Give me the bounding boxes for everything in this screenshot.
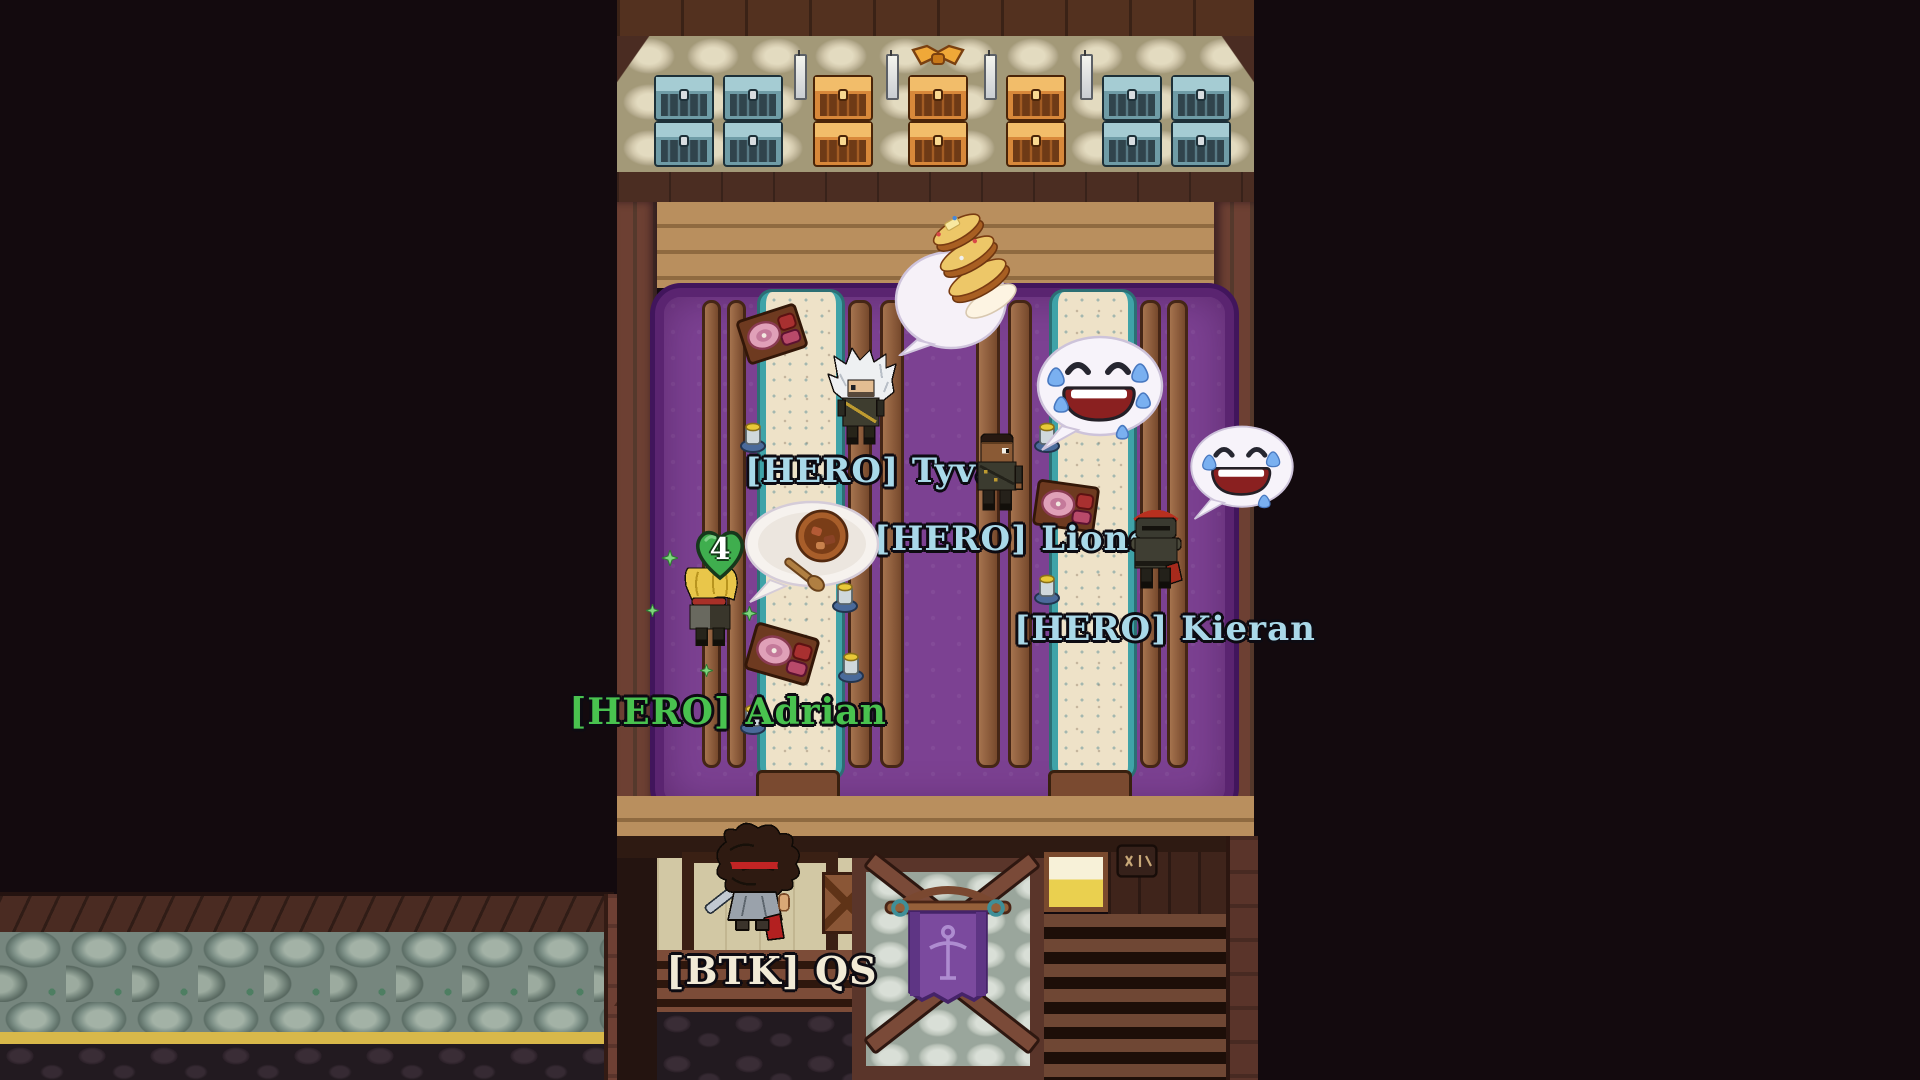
storage-chest-teal[interactable] bbox=[651, 70, 717, 172]
heal-sparkle-icon bbox=[700, 664, 713, 677]
heal-sparkle-icon bbox=[742, 606, 757, 621]
cobblestone-ground bbox=[0, 1044, 660, 1080]
door-post bbox=[682, 852, 694, 950]
laughing-crying-emote-bubble bbox=[1188, 420, 1296, 528]
storage-chest-orange[interactable] bbox=[810, 70, 876, 172]
mug-icon bbox=[838, 644, 864, 684]
mug-icon bbox=[1034, 566, 1060, 606]
cobblestone-ground bbox=[657, 1012, 857, 1080]
stone-wall bbox=[0, 932, 614, 1032]
player-label-adrian: [HERO] Adrian bbox=[538, 694, 918, 730]
hall-wall-left bbox=[617, 202, 657, 836]
heal-sparkle-icon bbox=[646, 604, 659, 617]
heal-sparkle-icon bbox=[662, 550, 678, 566]
player-sprite-lionel[interactable] bbox=[962, 430, 1034, 550]
player-sprite-kieran[interactable] bbox=[1118, 508, 1194, 630]
candle-icon bbox=[1080, 54, 1093, 100]
candle-icon bbox=[794, 54, 807, 100]
laughing-crying-emote-bubble bbox=[1034, 334, 1166, 456]
storage-chest-teal[interactable] bbox=[1099, 70, 1165, 172]
heal-heart-counter: 4 bbox=[692, 524, 748, 586]
wall-sign bbox=[1116, 844, 1158, 878]
ceiling-beam bbox=[617, 0, 1254, 40]
storage-chest-orange-ribbon[interactable] bbox=[905, 40, 971, 172]
candle-icon bbox=[984, 54, 997, 100]
stew-bowl-emote-bubble bbox=[738, 496, 890, 604]
building-right-post bbox=[1226, 836, 1258, 1080]
pancakes-emote-bubble bbox=[893, 204, 1025, 356]
lit-window bbox=[1044, 852, 1108, 912]
storage-chest-orange[interactable] bbox=[1003, 70, 1069, 172]
mug-icon bbox=[740, 414, 766, 454]
game-viewport[interactable]: [HERO] Tyva [HERO] Lionel [HERO] Kieran … bbox=[0, 0, 1920, 1080]
player-sprite-tyva[interactable] bbox=[826, 346, 900, 468]
player-sprite-qs[interactable] bbox=[702, 822, 810, 962]
candle-icon bbox=[886, 54, 899, 100]
side-stairs bbox=[1044, 914, 1226, 1080]
storage-chest-teal[interactable] bbox=[720, 70, 786, 172]
storage-chest-teal[interactable] bbox=[1168, 70, 1234, 172]
heal-count-value: 4 bbox=[692, 532, 748, 567]
